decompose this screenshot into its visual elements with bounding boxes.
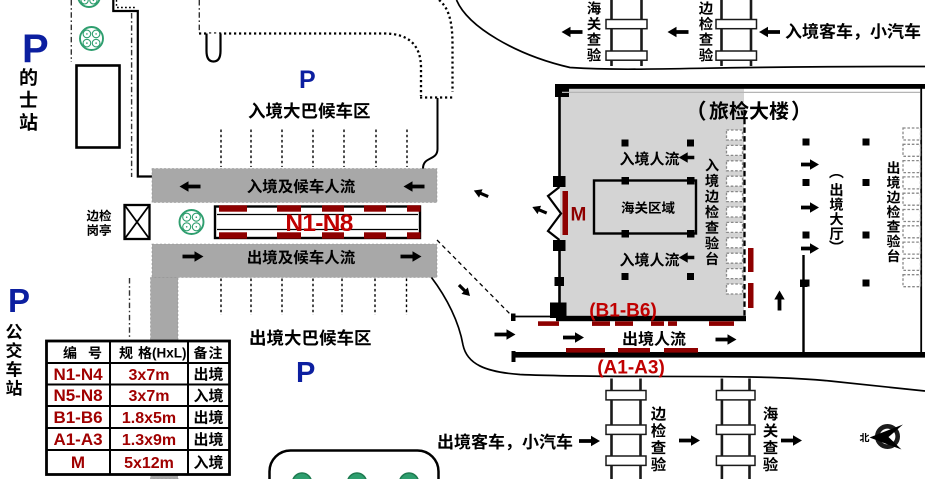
svg-text:(B1-B6): (B1-B6) [589, 301, 657, 322]
svg-text:M: M [571, 205, 587, 226]
svg-text:N1-N4: N1-N4 [53, 365, 103, 384]
svg-text:P: P [22, 27, 49, 71]
svg-text:5x12m: 5x12m [124, 455, 174, 472]
svg-text:M: M [71, 453, 85, 472]
svg-text:1.8x5m: 1.8x5m [122, 410, 176, 427]
svg-text:(HxL): (HxL) [152, 346, 187, 361]
svg-text:N5-N8: N5-N8 [53, 386, 102, 405]
svg-text:N1-N8: N1-N8 [285, 210, 352, 237]
svg-text:3x7m: 3x7m [129, 367, 170, 384]
svg-text:3x7m: 3x7m [129, 388, 170, 405]
svg-text:P: P [299, 66, 316, 94]
svg-text:(A1-A3): (A1-A3) [597, 358, 665, 379]
svg-text:P: P [296, 357, 315, 389]
svg-text:P: P [8, 282, 30, 319]
svg-text:A1-A3: A1-A3 [53, 430, 102, 449]
svg-text:B1-B6: B1-B6 [53, 408, 102, 427]
svg-text:1.3x9m: 1.3x9m [122, 432, 176, 449]
